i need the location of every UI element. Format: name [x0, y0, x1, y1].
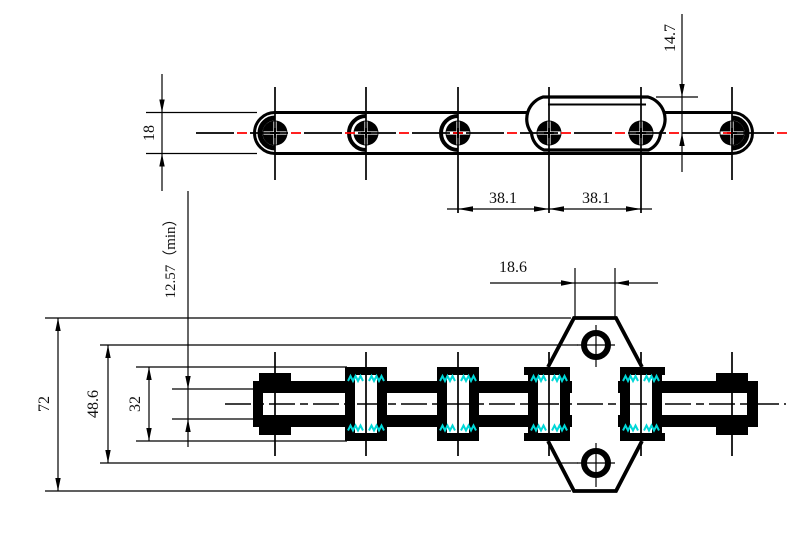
attachment-side-bottom	[524, 433, 665, 491]
engineering-drawing-sheet: 18 14.7 38.1 38.1	[0, 0, 800, 533]
dim-32-label: 32	[127, 396, 144, 412]
dim-18-label: 18	[141, 125, 158, 141]
dim-72-label: 72	[36, 396, 53, 412]
dim-14-7-label: 14.7	[662, 24, 679, 52]
side-view	[45, 268, 786, 491]
chain-attachment-drawing: 18 14.7 38.1 38.1	[0, 0, 800, 533]
attachment-side-top	[524, 318, 665, 375]
top-view	[146, 87, 789, 213]
dim-pitch-right-label: 38.1	[582, 190, 610, 207]
dim-48-6-label: 48.6	[85, 390, 102, 418]
attachment-hole-top	[577, 325, 615, 367]
dimensions-side-view: 72 48.6 32 12.57（min） 18.6	[36, 191, 658, 491]
dim-12-57-label: 12.57（min）	[162, 211, 179, 298]
dim-18-6-label: 18.6	[499, 259, 527, 276]
attachment-hole-bottom	[577, 443, 615, 487]
dim-pitch-left-label: 38.1	[489, 190, 517, 207]
